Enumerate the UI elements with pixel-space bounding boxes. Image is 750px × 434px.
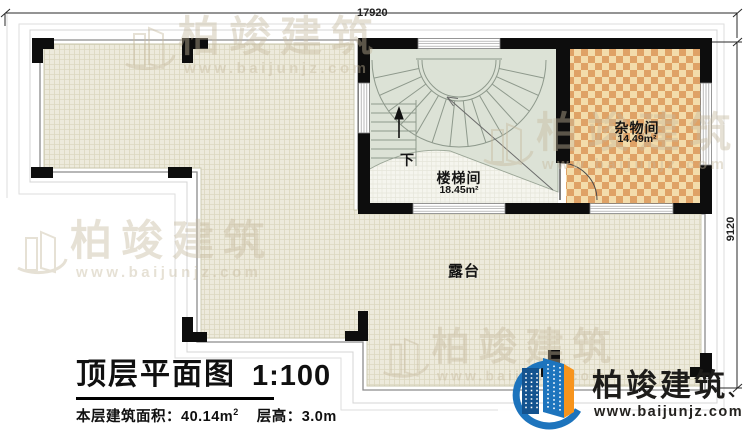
dimension-top-label: 17920 bbox=[357, 7, 388, 19]
dimension-right-label: 9120 bbox=[725, 207, 737, 251]
plan-scale: 1:100 bbox=[252, 360, 331, 393]
area-label: 本层建筑面积： bbox=[76, 409, 181, 425]
stairwell-area: 18.45m² bbox=[407, 184, 511, 196]
brand-name: 柏竣建筑 bbox=[592, 368, 728, 403]
title-underline bbox=[76, 397, 274, 400]
area-value: 40.14m bbox=[181, 409, 233, 425]
storage-area: 14.49m² bbox=[585, 133, 689, 145]
brand-url: www.baijunjz.com bbox=[594, 404, 749, 420]
title-block: 顶层平面图 1:100 本层建筑面积：40.14m2层高：3.0m bbox=[76, 349, 337, 426]
brand-suffix: 、 bbox=[728, 380, 749, 400]
brand-logo: 柏竣建筑、 www.baijunjz.com bbox=[494, 352, 749, 432]
plan-info-line: 本层建筑面积：40.14m2层高：3.0m bbox=[76, 405, 337, 426]
plan-title: 顶层平面图 bbox=[76, 349, 236, 393]
area-sup: 2 bbox=[233, 407, 239, 417]
stair-down-label: 下 bbox=[400, 150, 415, 170]
floor-height: 层高：3.0m bbox=[257, 409, 337, 425]
brand-building-icon bbox=[494, 352, 586, 432]
floor-plan-page: 柏竣建筑 www.baijunjz.com 柏竣建筑 www.baijunjz.… bbox=[0, 0, 750, 434]
terrace-label: 露台 bbox=[412, 260, 516, 281]
